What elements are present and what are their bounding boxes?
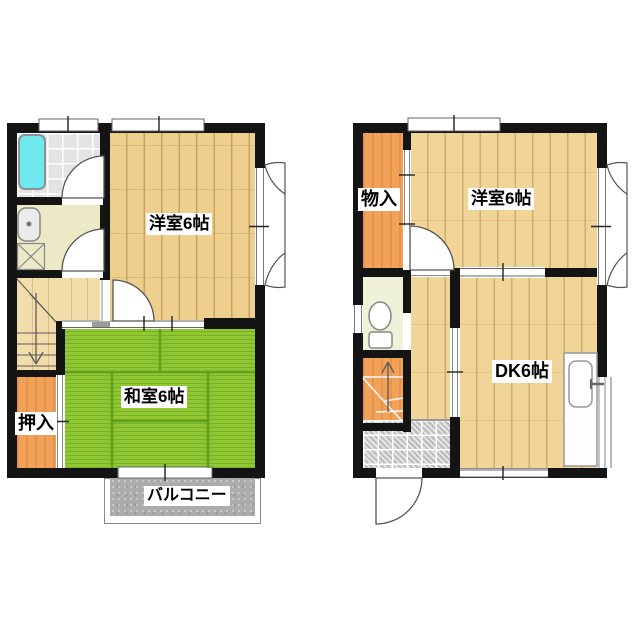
casement-window-icon (607, 163, 627, 194)
label-western-room-1f: 洋室6帖 (146, 213, 212, 235)
bathroom-window-icon (39, 119, 98, 131)
label-storage: 物入 (358, 188, 400, 211)
kitchen-window-icon (597, 377, 607, 468)
oshiire-fusuma-icon (56, 375, 65, 468)
washroom-floor (17, 205, 100, 270)
toilet-window-icon (353, 305, 363, 333)
tatami-balcony-window-icon (118, 467, 212, 478)
stairs-2f-floor (363, 358, 403, 423)
western1f-top-window-icon (112, 119, 204, 131)
label-dining-kitchen: DK6帖 (492, 360, 552, 383)
label-balcony: バルコニー (144, 486, 230, 506)
hallway-1f (56, 278, 110, 321)
entry-genkan-floor (363, 420, 450, 468)
entrance-door-swing-icon (376, 478, 422, 524)
label-japanese-room: 和室6帖 (121, 386, 187, 408)
stairs-1f-floor (17, 278, 56, 375)
casement-window-icon (265, 253, 285, 287)
label-closet: 押入 (15, 412, 57, 435)
label-western-room-2f: 洋室6帖 (468, 188, 534, 210)
hallway-2f (411, 277, 450, 420)
casement-window-icon (265, 163, 285, 194)
western2f-top-window-icon (408, 118, 500, 131)
toilet-room-floor (363, 277, 403, 350)
monoire-fusuma-icon (403, 150, 411, 226)
bathroom-floor (17, 133, 100, 197)
floor-plan: 洋室6帖 和室6帖 押入 バルコニー 物入 洋室6帖 DK6帖 (0, 0, 640, 640)
casement-window-icon (607, 253, 627, 287)
dk-sliding-door-icon (451, 328, 459, 417)
